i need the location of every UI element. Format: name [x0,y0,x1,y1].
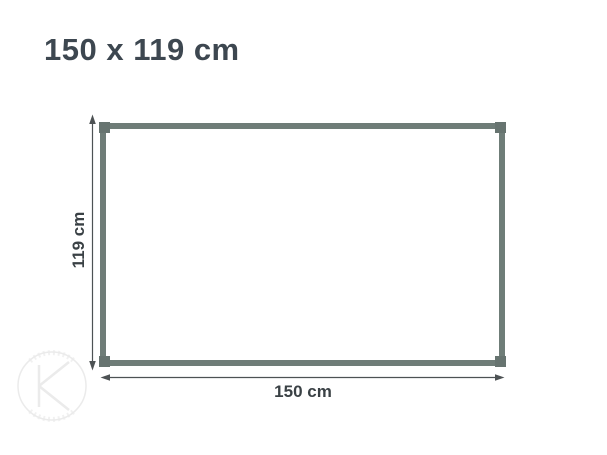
watermark-k-monogram [39,362,69,410]
watermark-logo [0,331,107,441]
watermark-circle [18,352,86,420]
width-dimension-label: 150 cm [274,382,332,402]
height-dimension-label: 119 cm [69,212,89,269]
product-dimension-diagram: 150 x 119 cm 119 cm 150 cm [0,0,607,455]
watermark-curved-text-bottom [30,411,74,419]
watermark-curved-text-top [30,353,74,361]
width-dimension-arrow [101,374,505,381]
